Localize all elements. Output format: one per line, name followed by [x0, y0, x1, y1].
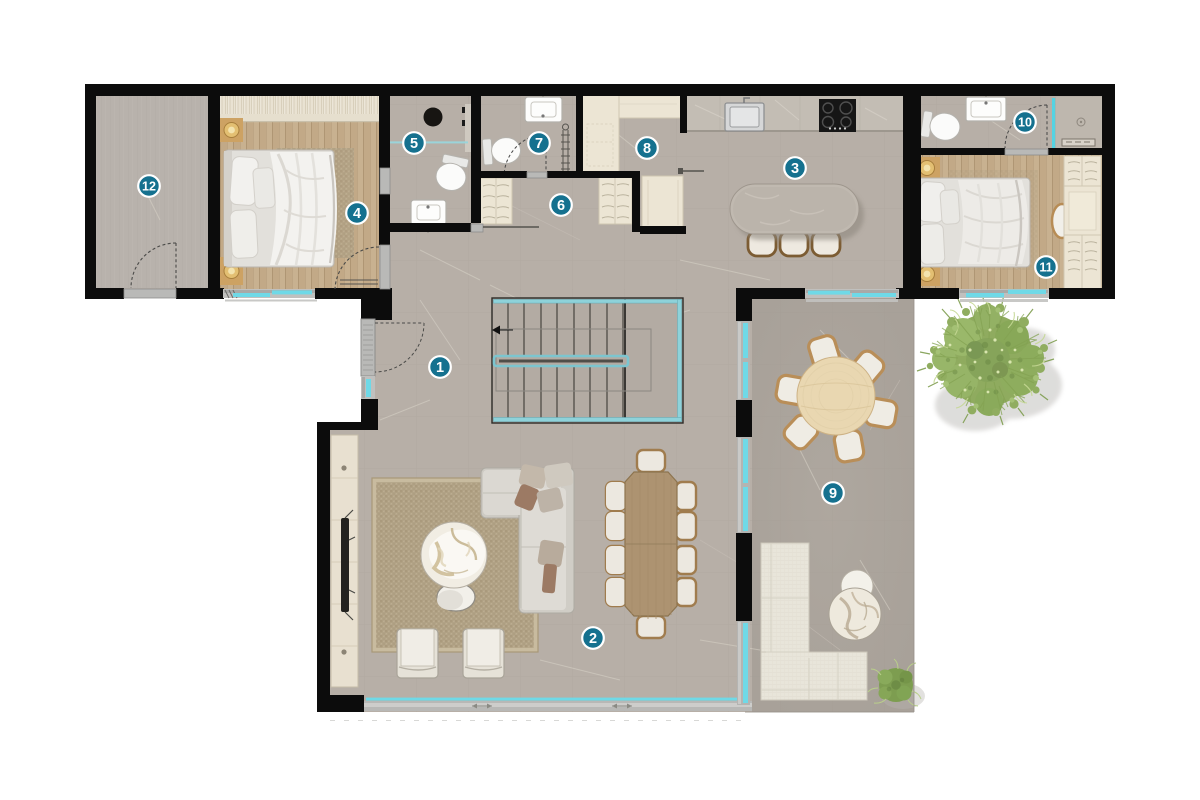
svg-text:1: 1 — [436, 360, 444, 376]
svg-text:8: 8 — [643, 141, 651, 157]
svg-text:11: 11 — [1039, 261, 1052, 275]
svg-text:7: 7 — [535, 136, 543, 152]
svg-text:3: 3 — [791, 161, 799, 177]
svg-text:2: 2 — [589, 631, 597, 647]
svg-text:6: 6 — [557, 198, 565, 214]
svg-text:5: 5 — [410, 136, 418, 152]
svg-text:4: 4 — [353, 206, 361, 222]
svg-text:9: 9 — [829, 486, 837, 502]
svg-text:12: 12 — [142, 180, 156, 194]
svg-text:10: 10 — [1018, 116, 1032, 130]
